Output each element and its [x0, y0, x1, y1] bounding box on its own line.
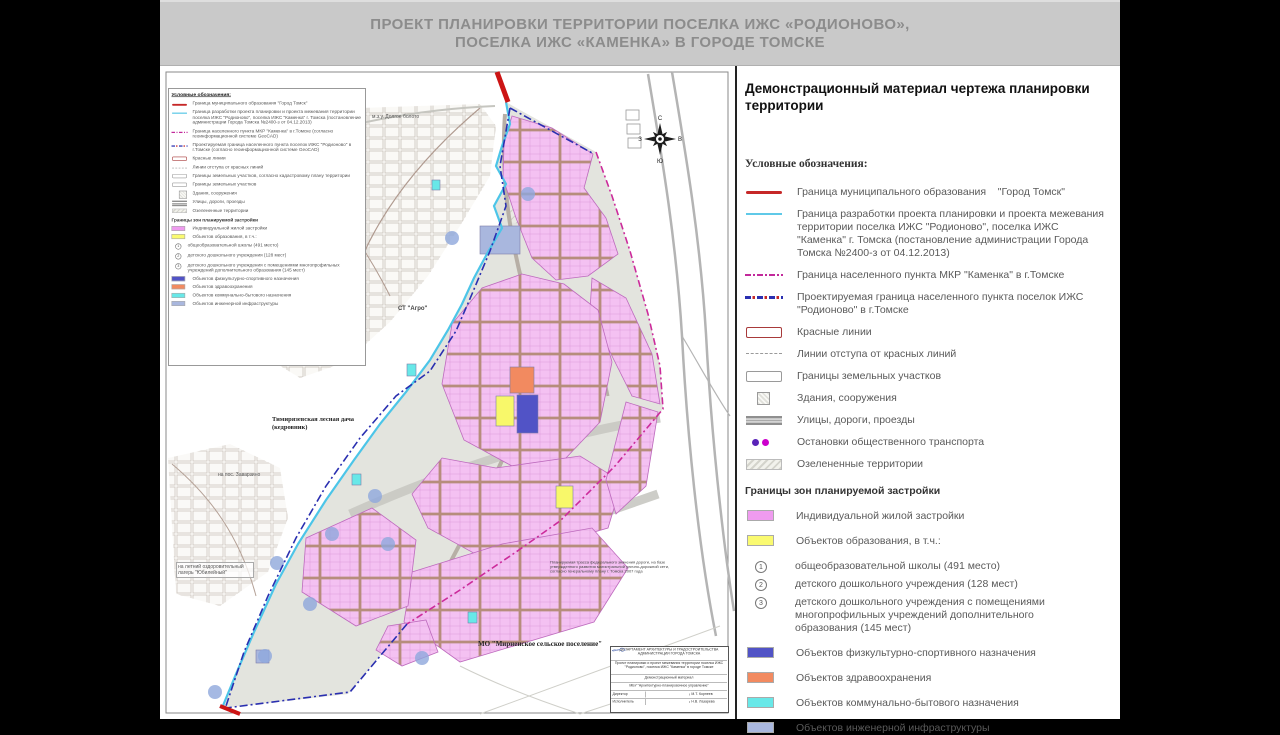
zone-legend-item: Объектов коммунально-бытового назначения	[747, 697, 1110, 710]
legend-symbol-marker-icon	[171, 173, 187, 179]
map-legend-item: Границы земельных участков	[171, 182, 364, 188]
map-zone-item: Объектов коммунально-бытового назначения	[171, 293, 364, 298]
numbered-circle-icon: 2	[175, 253, 181, 259]
map-zone-item: Объектов образования, в т.ч.:	[171, 234, 364, 239]
stamp-doc: Демонстрационный материал	[611, 675, 727, 683]
map-legend-item: Озелененные территории	[171, 208, 364, 214]
zone-color-swatch	[747, 672, 774, 683]
zone-color-swatch	[747, 510, 774, 521]
compass-south: Ю	[657, 159, 663, 165]
legend-symbol-marker-icon	[745, 326, 783, 339]
label-zavarzino: на пос. Заварзино	[218, 472, 260, 478]
education-legend-item: 1 общеобразовательной школы (491 место)	[755, 560, 1110, 573]
zone-legend-item: Объектов образования, в т.ч.:	[747, 535, 1110, 548]
legend-symbol-marker-icon	[745, 392, 783, 405]
legend-item: Красные линии	[745, 326, 1110, 339]
legend-item: Границы земельных участков	[745, 370, 1110, 383]
zone-color-swatch	[171, 226, 185, 231]
zones-heading: Границы зон планируемой застройки	[745, 485, 1110, 497]
legend-line-marker-icon	[171, 109, 187, 115]
numbered-circle-icon: 3	[755, 597, 767, 609]
legend-item: Граница муниципального образования "Горо…	[745, 186, 1110, 199]
map-legend-title: Условные обозначения:	[171, 91, 364, 97]
zone-color-swatch	[747, 535, 774, 546]
map-legend-item: Здания, сооружения	[171, 190, 364, 196]
map-legend-item: Границы земельных участков, согласно кад…	[171, 173, 364, 179]
map-zone-item: Объектов здравоохранения	[171, 284, 364, 289]
map-legend-item: Красные линии	[171, 156, 364, 162]
education-zone-1	[496, 396, 514, 426]
map-education-item: 2 детского дошкольного учреждения (128 м…	[175, 252, 365, 259]
map-legend-item: Граница населенного пункта МКР "Каменка"…	[171, 128, 364, 139]
legend-line-marker-icon	[745, 269, 783, 282]
slide: ПРОЕКТ ПЛАНИРОВКИ ТЕРРИТОРИИ ПОСЕЛКА ИЖС…	[160, 0, 1120, 719]
signature-icon	[611, 647, 626, 653]
compass-east: В	[678, 137, 682, 143]
map-zone-item: Индивидуальной жилой застройки	[171, 226, 364, 231]
legend-symbol-marker-icon	[745, 436, 783, 449]
label-camp: на летний оздоровительный лагерь "Юбилей…	[176, 562, 254, 578]
page-title-line2: ПОСЕЛКА ИЖС «КАМЕНКА» В ГОРОДЕ ТОМСКЕ	[455, 34, 825, 52]
education-legend-item: 2 детского дошкольного учреждения (128 м…	[755, 578, 1110, 591]
legend-symbol-marker-icon	[171, 164, 187, 170]
legend-line-marker-icon	[171, 128, 187, 134]
stamp-row-executor: Исполнитель Н.В. Лазарева	[611, 699, 727, 706]
stamp-office: МБУ "Архитектурно-планировочное управлен…	[611, 683, 727, 691]
zone-legend-item: Объектов физкультурно-спортивного назнач…	[747, 647, 1110, 660]
zone-color-swatch	[747, 697, 774, 708]
compass-west: З	[638, 137, 642, 143]
stamp-org: ДЕПАРТАМЕНТ АРХИТЕКТУРЫ И ГРАДОСТРОИТЕЛЬ…	[611, 647, 727, 661]
map-legend-box: Условные обозначения: Граница муниципаль…	[168, 88, 366, 366]
communal-zone	[468, 612, 477, 623]
label-bog: м.з.у. Долгое болото	[372, 114, 419, 120]
legend-symbol-marker-icon	[171, 190, 187, 196]
health-zone	[510, 367, 534, 393]
zone-color-swatch	[747, 722, 774, 733]
legend-symbol-marker-icon	[745, 370, 783, 383]
education-zone-2	[556, 486, 573, 508]
legend-item: Остановки общественного транспорта	[745, 436, 1110, 449]
map-legend-item: Улицы, дороги, проезды	[171, 199, 364, 205]
legend-symbol-marker-icon	[171, 156, 187, 162]
legend-symbol-marker-icon	[171, 182, 187, 188]
legend-item: Проектируемая граница населенного пункта…	[745, 291, 1110, 317]
title-block: ДЕПАРТАМЕНТ АРХИТЕКТУРЫ И ГРАДОСТРОИТЕЛЬ…	[610, 646, 729, 713]
numbered-circle-icon: 1	[755, 561, 767, 573]
legend-panel: Демонстрационный материал чертежа планир…	[735, 66, 1120, 719]
legend-item: Граница населенного пункта МКР "Каменка"…	[745, 269, 1110, 282]
map-zone-item: Объектов инженерной инфраструктуры	[171, 301, 364, 306]
map-education-item: 1 общеобразовательной школы (491 место)	[175, 242, 365, 249]
legend-heading: Условные обозначения:	[745, 158, 1110, 170]
communal-zone	[407, 364, 416, 376]
legend-item: Озелененные территории	[745, 458, 1110, 471]
map-legend-item: Проектируемая граница населенного пункта…	[171, 142, 364, 153]
legend-symbol-marker-icon	[745, 348, 783, 361]
planning-map: С Ю З В Условные обозначения: Граница му…	[160, 66, 735, 719]
map-education-item: 3 детского дошкольного учреждения с поме…	[175, 262, 365, 273]
zone-color-swatch	[171, 301, 185, 306]
map-zone-item: Объектов физкультурно-спортивного назнач…	[171, 276, 364, 281]
zone-color-swatch	[171, 293, 185, 298]
numbered-circle-icon: 2	[755, 579, 767, 591]
legend-symbol-marker-icon	[745, 414, 783, 427]
zone-color-swatch	[171, 276, 185, 281]
compass-north: С	[658, 116, 663, 122]
legend-item: Улицы, дороги, проезды	[745, 414, 1110, 427]
sport-zone	[517, 395, 538, 433]
legend-line-marker-icon	[745, 291, 783, 304]
map-legend-item: Граница муниципального образования "Горо…	[171, 101, 364, 107]
label-mo: МО "Мирненское сельское поселение"	[478, 640, 602, 648]
zone-color-swatch	[747, 647, 774, 658]
zone-legend-item: Индивидуальной жилой застройки	[747, 510, 1110, 523]
zone-legend-item: Объектов инженерной инфраструктуры	[747, 722, 1110, 735]
map-legend-item: Граница разработки проекта планировки и …	[171, 109, 364, 125]
label-dacha: Тимирязевская лесная дача (кедровник)	[272, 416, 354, 432]
page-title-line1: ПРОЕКТ ПЛАНИРОВКИ ТЕРРИТОРИИ ПОСЕЛКА ИЖС…	[370, 16, 909, 34]
stamp-row-director: Директор М.Т. Корнеев	[611, 691, 727, 699]
communal-zone	[352, 474, 361, 485]
label-road-note: Планируемая трасса федерального значения…	[550, 560, 675, 574]
legend-symbol-marker-icon	[171, 208, 187, 214]
communal-zone	[432, 180, 440, 190]
legend-symbol-marker-icon	[171, 199, 187, 205]
legend-line-marker-icon	[745, 186, 783, 199]
zone-legend-item: Объектов здравоохранения	[747, 672, 1110, 685]
zone-color-swatch	[171, 234, 185, 239]
legend-symbol-marker-icon	[745, 458, 783, 471]
legend-line-marker-icon	[171, 142, 187, 148]
legend-item: Здания, сооружения	[745, 392, 1110, 405]
legend-line-marker-icon	[745, 208, 783, 221]
legend-item: Граница разработки проекта планировки и …	[745, 208, 1110, 260]
legend-line-marker-icon	[171, 101, 187, 107]
map-legend-item: Линии отступа от красных линий	[171, 164, 364, 170]
panel-title: Демонстрационный материал чертежа планир…	[745, 80, 1105, 114]
legend-item: Линии отступа от красных линий	[745, 348, 1110, 361]
page-header: ПРОЕКТ ПЛАНИРОВКИ ТЕРРИТОРИИ ПОСЕЛКА ИЖС…	[160, 0, 1120, 66]
zone-color-swatch	[171, 284, 185, 289]
stamp-project: Проект планировки и проект межевания тер…	[611, 661, 727, 676]
education-legend-item: 3 детского дошкольного учреждения с поме…	[755, 596, 1110, 635]
label-agro: СТ "Агро"	[398, 306, 427, 312]
map-zones-heading: Границы зон планируемой застройки	[171, 217, 364, 223]
numbered-circle-icon: 3	[175, 263, 181, 269]
numbered-circle-icon: 1	[175, 243, 181, 249]
